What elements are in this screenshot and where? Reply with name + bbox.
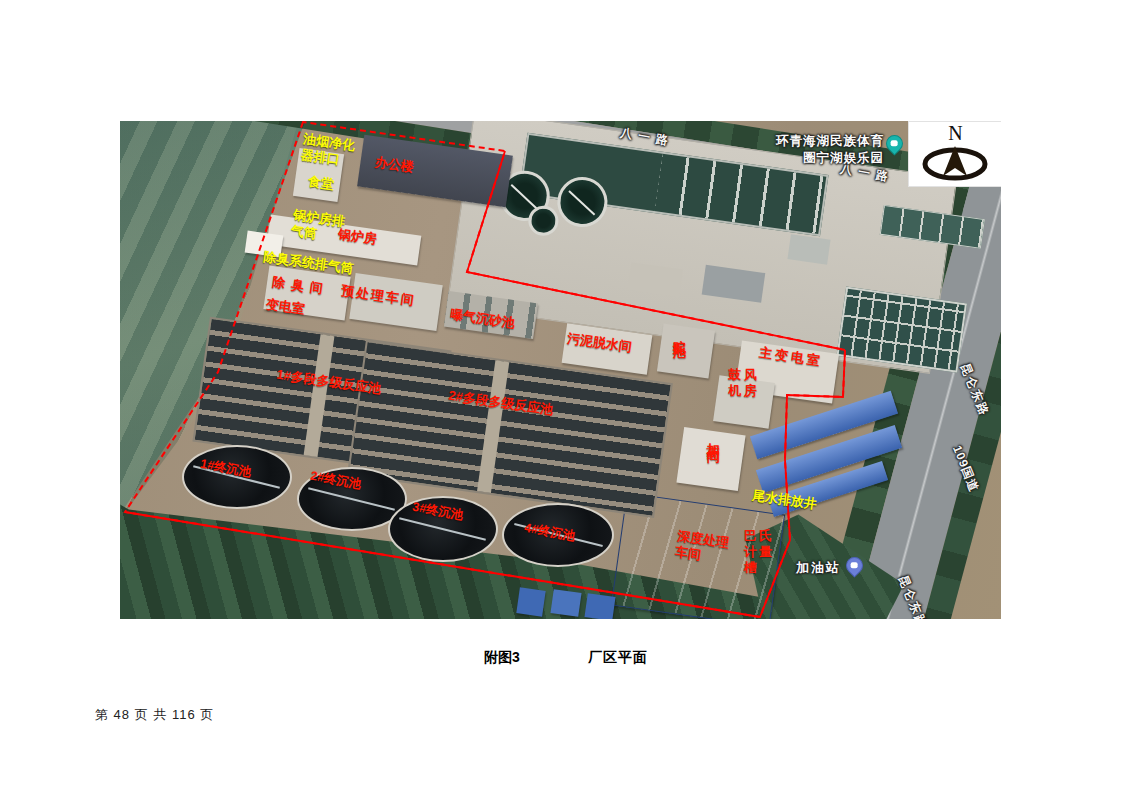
plant-building	[702, 265, 766, 303]
north-compass: N	[908, 121, 1001, 187]
label-sludge-storage: 贮泥池	[671, 329, 687, 391]
figure-title: 厂区平面	[588, 649, 648, 667]
clarifier-bridge	[569, 190, 596, 215]
satellite-map-figure: 八一路 八一路 昆仑东路 109国道 昆仑东路 环青海湖民族体育 圈宁湖娱乐园 …	[120, 121, 1001, 619]
small-blue-building	[550, 589, 581, 617]
poi-label-sports-park: 环青海湖民族体育 圈宁湖娱乐园	[736, 133, 884, 167]
page-number-footer: 第 48 页 共 116 页	[95, 706, 214, 724]
clarifier-bridge	[511, 184, 538, 209]
document-page: 八一路 八一路 昆仑东路 109国道 昆仑东路 环青海湖民族体育 圈宁湖娱乐园 …	[0, 0, 1122, 793]
figure-caption: 附图3 厂区平面	[0, 649, 1122, 669]
label-canteen: 食堂	[307, 173, 335, 192]
plant-building	[628, 262, 683, 297]
label-blower-room: 鼓风机房	[728, 367, 764, 399]
pin-glyph	[891, 140, 898, 146]
small-blue-building	[584, 593, 615, 619]
tank-bridge	[400, 517, 487, 540]
compass-emblem-icon	[920, 144, 990, 182]
poi-label-line1: 环青海湖民族体育	[736, 133, 884, 150]
small-blue-building	[516, 587, 545, 616]
poi-label-gas-station: 加油站	[796, 559, 841, 577]
compass-n-letter: N	[909, 122, 1001, 144]
walkway	[477, 360, 509, 493]
plant-building	[787, 234, 830, 264]
figure-number: 附图3	[484, 649, 520, 667]
walkway	[304, 334, 335, 457]
label-dosing-room: 加药间	[705, 432, 721, 490]
label-parshall-flume: 巴氏计量槽	[744, 528, 776, 576]
pin-glyph	[851, 562, 858, 568]
poi-label-line2: 圈宁湖娱乐园	[736, 150, 884, 167]
